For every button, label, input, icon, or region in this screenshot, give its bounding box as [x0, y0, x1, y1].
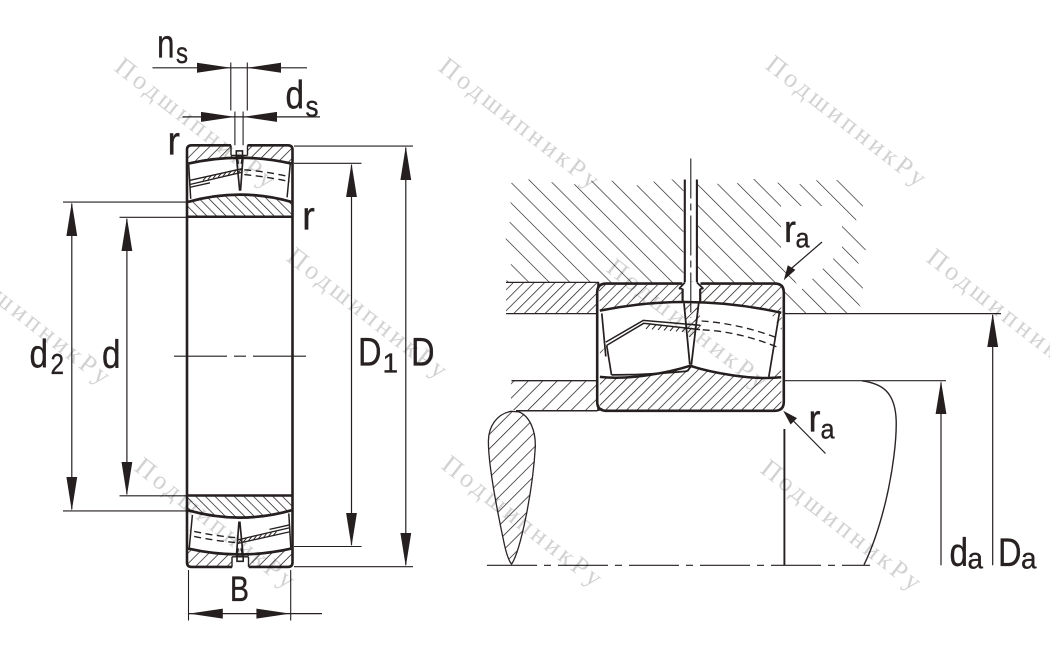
svg-text:r: r [784, 209, 796, 251]
svg-text:a: a [968, 543, 984, 576]
svg-text:d: d [950, 531, 969, 575]
svg-text:s: s [176, 37, 188, 70]
svg-text:a: a [1021, 543, 1037, 576]
svg-text:d: d [286, 74, 305, 118]
svg-text:n: n [157, 23, 175, 67]
svg-text:a: a [821, 414, 835, 445]
svg-text:r: r [809, 399, 821, 441]
svg-text:r: r [302, 195, 315, 239]
svg-text:D: D [998, 531, 1022, 575]
svg-text:a: a [796, 223, 810, 254]
svg-text:s: s [306, 91, 319, 124]
svg-text:B: B [230, 570, 249, 609]
